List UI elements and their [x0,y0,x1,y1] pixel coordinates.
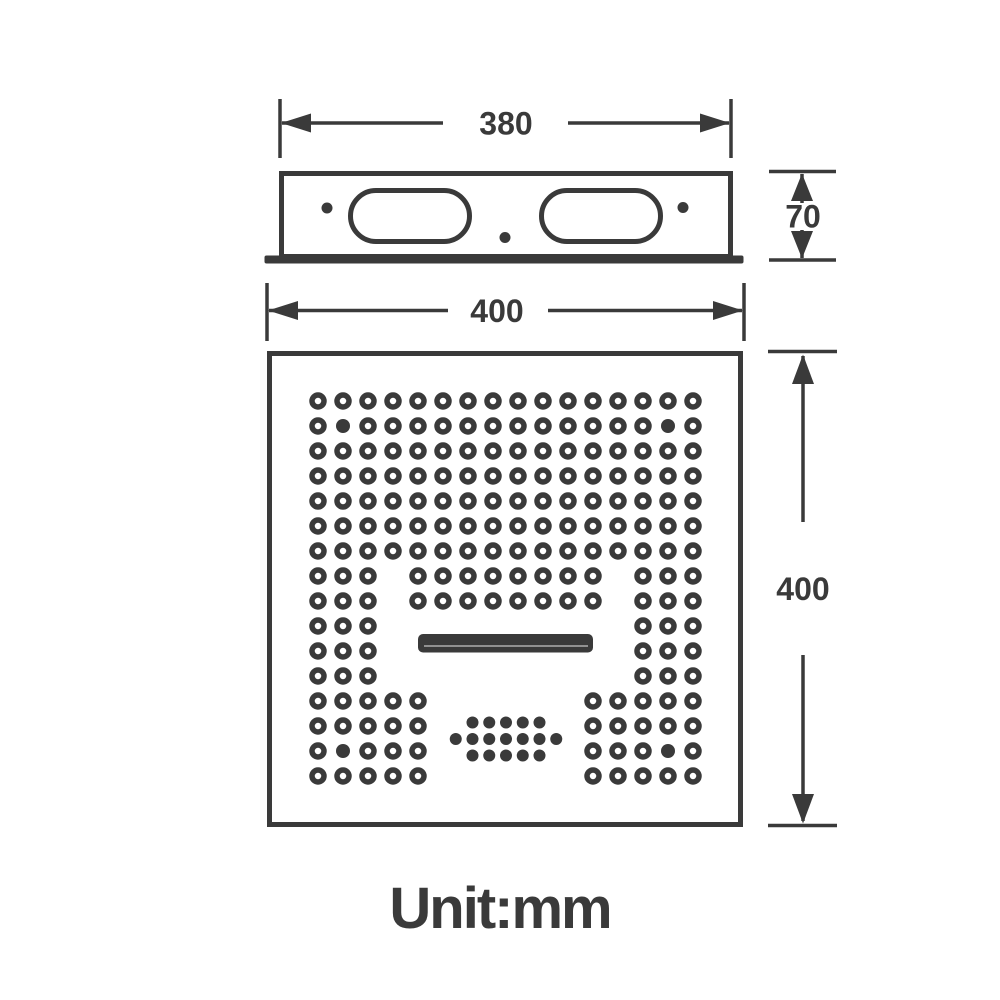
rain-nozzle-dot [537,595,549,607]
rain-nozzle-dot [412,570,424,582]
rain-nozzle-dot [662,395,674,407]
rain-nozzle-dot [487,570,499,582]
rain-nozzle-dot [437,520,449,532]
rain-nozzle-dot [662,445,674,457]
rain-nozzle-dot [487,470,499,482]
rain-nozzle-dot [587,770,599,782]
rain-nozzle-dot [687,420,699,432]
rain-nozzle-dot [562,470,574,482]
rain-nozzle-dot [687,570,699,582]
rain-nozzle-dot [512,420,524,432]
dimension-380: 380 [280,99,731,158]
rain-nozzle-dot [637,395,649,407]
rain-nozzle-dot [412,445,424,457]
rain-nozzle-dot [412,595,424,607]
rain-nozzle-dot [337,495,349,507]
rain-nozzle-dot [387,395,399,407]
rain-nozzle-dot [587,570,599,582]
rain-nozzle-dot [637,745,649,757]
rain-nozzle-dot [487,420,499,432]
rain-nozzle-dot [362,745,374,757]
mist-nozzle-dot [550,733,562,745]
arrowhead-up-icon [792,355,814,385]
rain-nozzle-dot [537,520,549,532]
rain-nozzle-dot [337,545,349,557]
rain-nozzle-dot [362,570,374,582]
mist-nozzle-cluster [450,717,563,762]
rain-nozzle-dot [362,595,374,607]
rain-nozzle-dot [687,470,699,482]
arrowhead-down-icon [791,231,813,259]
rain-nozzle-dot [587,420,599,432]
rain-nozzle-dot [312,595,324,607]
mist-nozzle-dot [517,717,529,729]
rain-nozzle-dot [362,520,374,532]
rain-nozzle-dot [362,420,374,432]
rain-nozzle-dot [537,545,549,557]
mist-nozzle-dot [500,733,512,745]
rain-nozzle-dot [537,445,549,457]
rain-nozzle-dot [562,445,574,457]
rain-nozzle-dot [637,570,649,582]
rain-nozzle-dot [487,495,499,507]
rain-nozzle-dot [312,645,324,657]
rain-nozzle-dot [637,645,649,657]
rain-nozzle-dot [387,695,399,707]
rain-nozzle-dot [337,395,349,407]
rain-nozzle-dot [337,470,349,482]
rain-nozzle-dot [462,395,474,407]
rain-nozzle-dot [662,645,674,657]
rain-nozzle-dot [687,545,699,557]
rain-nozzle-dot [312,445,324,457]
rain-nozzle-dot [362,720,374,732]
rain-nozzle-dot [637,620,649,632]
rain-nozzle-dot [412,395,424,407]
rain-nozzle-dot [587,395,599,407]
rain-nozzle-dot [637,670,649,682]
rain-nozzle-dot [612,770,624,782]
mist-nozzle-dot [517,750,529,762]
rain-nozzle-dot [637,720,649,732]
rain-nozzle-dot [662,545,674,557]
rain-nozzle-dot [337,645,349,657]
rain-nozzle-dot [687,770,699,782]
rain-nozzle-dot [612,695,624,707]
rain-nozzle-dot [687,745,699,757]
rain-nozzle-dot [612,520,624,532]
rain-nozzle-dot [687,695,699,707]
rain-nozzle-dot [462,495,474,507]
rain-nozzle-dot [612,420,624,432]
rain-nozzle-dot [687,620,699,632]
rain-nozzle-dot [412,545,424,557]
rain-nozzle-dot [462,470,474,482]
flange-plate [265,256,744,264]
rain-nozzle-dot [412,695,424,707]
rain-nozzle-dot [587,495,599,507]
rain-nozzle-dot [387,520,399,532]
rain-nozzle-dot [387,495,399,507]
rain-nozzle-dot [637,770,649,782]
rain-nozzle-dot [537,495,549,507]
rain-nozzle-dot [462,445,474,457]
rain-nozzle-dot [362,670,374,682]
rain-nozzle-dot [437,545,449,557]
rain-nozzle-dot [487,545,499,557]
mist-nozzle-dot [467,750,479,762]
rain-nozzle-dot [412,770,424,782]
mist-nozzle-dot [534,750,546,762]
rain-nozzle-dot [612,495,624,507]
rain-nozzle-dot [537,470,549,482]
rain-nozzle-dot [387,445,399,457]
rain-nozzle-dot [312,670,324,682]
rain-nozzle-dot [612,470,624,482]
rain-nozzle-dot [487,395,499,407]
rain-nozzle-dot [337,720,349,732]
rain-nozzle-dot [312,420,324,432]
rain-nozzle-dot [362,470,374,482]
rain-nozzle-dot [362,770,374,782]
rain-nozzle-dot [587,745,599,757]
rain-nozzle-dot [562,595,574,607]
rain-nozzle-dot [687,520,699,532]
rain-nozzle-dot [412,520,424,532]
rain-nozzle-dot [512,495,524,507]
rain-nozzle-dot [562,495,574,507]
rain-nozzle-dot [612,745,624,757]
rain-nozzle-dot [637,495,649,507]
rain-nozzle-dot [412,745,424,757]
rain-nozzle-dot [462,520,474,532]
rain-nozzle-dot [362,545,374,557]
screw-dot [336,744,350,758]
unit-label: Unit:mm [389,876,610,941]
rain-nozzle-dot [412,495,424,507]
rain-nozzle-dot [412,720,424,732]
mist-nozzle-dot [500,717,512,729]
screw-dot [336,419,350,433]
rain-nozzle-dot [662,720,674,732]
rain-nozzle-dot [487,520,499,532]
rain-nozzle-dot [362,445,374,457]
rain-nozzle-dot [637,545,649,557]
rain-nozzle-dot [587,470,599,482]
rain-nozzle-dot [312,520,324,532]
rain-nozzle-dot [662,570,674,582]
dimension-400-height: 400 [768,352,837,826]
rain-nozzle-dot [362,395,374,407]
rain-nozzle-dot [612,545,624,557]
rain-nozzle-dot [387,720,399,732]
dimension-400-width: 400 [267,283,744,341]
rain-nozzle-dot [312,470,324,482]
rain-nozzle-dot [462,545,474,557]
rain-nozzle-dot [562,420,574,432]
shower-head-dimension-drawing: 380 70 400 [0,0,1000,1000]
rain-nozzle-dot [562,395,574,407]
rain-nozzle-dot [687,495,699,507]
waterfall-slot [418,634,593,653]
rain-nozzle-dot [337,620,349,632]
arrowhead-down-icon [792,794,814,824]
screw-dot [661,419,675,433]
rain-nozzle-dot [662,470,674,482]
rain-nozzle-dot [587,695,599,707]
rain-nozzle-dot [537,570,549,582]
rain-nozzle-dot [662,495,674,507]
arrowhead-left-icon [268,301,298,320]
rain-nozzle-dot [362,495,374,507]
rain-nozzle-dot [687,445,699,457]
rain-nozzle-dot [312,545,324,557]
rain-nozzle-dot [512,445,524,457]
rain-nozzle-dot [362,645,374,657]
oblong-cutout-left [351,191,470,242]
rain-nozzle-dot [437,395,449,407]
mist-nozzle-dot [534,733,546,745]
rain-nozzle-dot [687,395,699,407]
dimension-70: 70 [769,172,836,261]
rain-nozzle-dot [512,595,524,607]
dimension-70-label: 70 [785,199,821,235]
rain-nozzle-dot [637,445,649,457]
rain-nozzle-dot [512,570,524,582]
rain-nozzle-dot [337,520,349,532]
rain-nozzle-dot [387,770,399,782]
rain-nozzle-dot [362,620,374,632]
mist-nozzle-dot [483,717,495,729]
rain-nozzle-dot [687,670,699,682]
mist-nozzle-dot [450,733,462,745]
rain-nozzle-dot [637,595,649,607]
rain-nozzle-dot [487,595,499,607]
rain-nozzle-dot [337,595,349,607]
rain-nozzle-dot [662,770,674,782]
rain-nozzle-dot [337,670,349,682]
dimension-400-width-label: 400 [470,293,523,329]
waterfall-bar [418,634,593,653]
rain-nozzle-dot [312,695,324,707]
rain-nozzle-dot [512,470,524,482]
rain-nozzle-dot [387,420,399,432]
rain-nozzle-dot [387,545,399,557]
mount-dot-right [678,202,689,213]
rain-nozzle-dot [437,445,449,457]
mist-nozzle-dot [517,733,529,745]
rain-nozzle-dot [637,470,649,482]
rain-nozzle-dot [437,495,449,507]
rain-nozzle-dot [662,595,674,607]
rain-nozzle-dot [462,595,474,607]
rain-nozzle-dot [312,745,324,757]
rain-nozzle-dot [362,695,374,707]
front-panel-view [270,354,741,825]
rain-nozzle-dot [487,445,499,457]
rain-nozzle-dot [537,395,549,407]
rain-nozzle-dot [437,470,449,482]
mist-nozzle-dot [467,717,479,729]
mist-nozzle-dot [534,717,546,729]
mist-nozzle-dot [483,733,495,745]
rain-nozzle-dot [412,470,424,482]
rain-nozzle-dot [662,620,674,632]
rain-nozzle-dot [337,445,349,457]
side-profile-view [265,174,744,264]
rain-nozzle-dot [587,445,599,457]
rain-nozzle-dot [587,520,599,532]
rain-nozzle-dot [562,545,574,557]
rain-nozzle-dot [337,570,349,582]
rain-nozzle-dot [312,495,324,507]
screw-dot [661,744,675,758]
mount-dot-left [322,203,333,214]
rain-nozzle-dot [312,620,324,632]
arrowhead-right-icon [713,301,743,320]
rain-nozzle-dot [412,420,424,432]
dimension-400-height-label: 400 [776,571,829,607]
arrowhead-right-icon [700,114,730,133]
rain-nozzle-dot [587,720,599,732]
rain-nozzle-dot [337,695,349,707]
rain-nozzle-dot [637,695,649,707]
rain-nozzle-dot [637,520,649,532]
diagram-canvas: 380 70 400 [0,0,1000,1000]
rain-nozzle-dot [612,445,624,457]
rain-nozzle-dot [662,695,674,707]
rain-nozzle-dot [687,720,699,732]
rain-nozzle-dot [387,470,399,482]
rain-nozzle-dot [387,745,399,757]
rain-nozzle-dot [637,420,649,432]
mist-nozzle-dot [467,733,479,745]
rain-nozzle-dot [337,770,349,782]
rain-nozzle-dot [312,570,324,582]
rain-nozzle-dot [437,570,449,582]
rain-nozzle-dot [512,520,524,532]
rain-nozzle-dot [512,545,524,557]
mount-dot-center [500,232,511,243]
rain-nozzle-dot [437,595,449,607]
rain-nozzle-dot [687,595,699,607]
arrowhead-left-icon [281,114,311,133]
rain-nozzle-dot [587,595,599,607]
rain-nozzle-dot [612,395,624,407]
rain-nozzle-dot [312,720,324,732]
mist-nozzle-dot [500,750,512,762]
rain-nozzle-dot [462,570,474,582]
rain-nozzle-dot [437,420,449,432]
rain-nozzle-dot [612,720,624,732]
rain-nozzle-dot [537,420,549,432]
rain-nozzle-dot [312,770,324,782]
rain-nozzle-dot [312,395,324,407]
dimension-380-label: 380 [479,106,532,142]
oblong-cutout-right [542,191,661,242]
rain-nozzle-dot [462,420,474,432]
rain-nozzle-dot [562,520,574,532]
rain-nozzle-dot [512,395,524,407]
rain-nozzle-dot [687,645,699,657]
rain-nozzle-dot [662,670,674,682]
rain-nozzle-dot [587,545,599,557]
mist-nozzle-dot [483,750,495,762]
rain-nozzle-dot [562,570,574,582]
rain-nozzle-dot [662,520,674,532]
arrowhead-up-icon [791,174,813,202]
